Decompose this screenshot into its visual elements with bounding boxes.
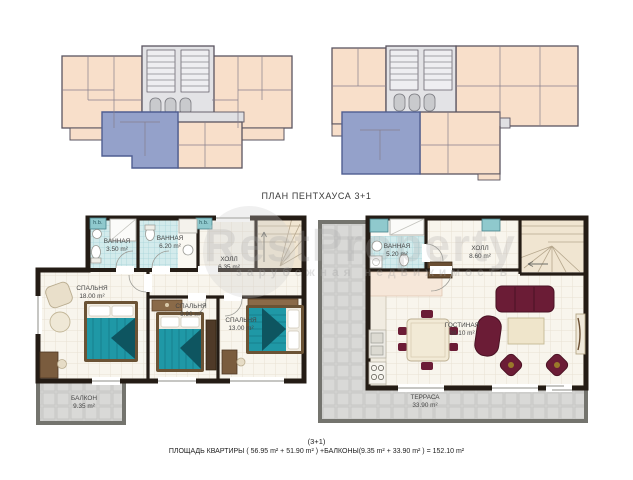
- room-label-bathroom-2: ВАННАЯ 6.20 m²: [157, 235, 183, 251]
- room-label-living-room: ГОСТИНАЯ 38.10 m²: [445, 322, 479, 338]
- floor-plan-upper: [320, 218, 586, 421]
- key-plan-upper-level: [332, 46, 578, 180]
- hb-unit-label: h.b.: [199, 220, 209, 226]
- sofa-icon: [496, 286, 554, 312]
- room-label-bathroom-1: ВАННАЯ 3.50 m²: [104, 238, 130, 254]
- caption-apartment-type: (3+1): [0, 437, 633, 446]
- room-label-bedroom-3: СПАЛЬНЯ 13.00 m²: [225, 317, 256, 333]
- bed-icon: [84, 301, 138, 362]
- room-label-bedroom-1: СПАЛЬНЯ 18.00 m²: [76, 285, 107, 301]
- room-label-bedroom-2: СПАЛЬНЯ 9.90 m²: [175, 303, 206, 319]
- tv-stand-icon: [576, 314, 585, 354]
- floorplan-sheet: RestProperty зарубежная недвижимость ПЛА…: [0, 0, 633, 480]
- coffee-table-icon: [508, 318, 544, 344]
- stairs-icon: [258, 218, 304, 268]
- key-plan-lower-level: [62, 46, 292, 168]
- room-label-hall-2: ХОЛЛ 8.60 m²: [469, 245, 491, 261]
- wardrobe-icon: [206, 320, 216, 370]
- highlighted-unit: [342, 112, 420, 174]
- room-label-balcony: БАЛКОН 9.35 m²: [71, 395, 97, 411]
- page-title: ПЛАН ПЕНТХАУСА 3+1: [0, 191, 633, 201]
- highlighted-unit: [102, 112, 178, 168]
- kitchen-appliances: [369, 330, 386, 384]
- room-label-bathroom-3: ВАННАЯ 5.20 m²: [384, 243, 410, 259]
- room-label-terrace: ТЕРРАСА 33.90 m²: [410, 394, 439, 410]
- room-label-hall-1: ХОЛЛ 6.35 m²: [218, 256, 240, 272]
- caption-total-area: ПЛОЩАДЬ КВАРТИРЫ ( 56.95 m² + 51.90 m² )…: [0, 448, 633, 455]
- stairs-icon: [520, 218, 586, 272]
- elevator-icons: [394, 94, 435, 111]
- hb-unit-label: h.b.: [93, 220, 103, 226]
- bed-icon: [156, 312, 204, 372]
